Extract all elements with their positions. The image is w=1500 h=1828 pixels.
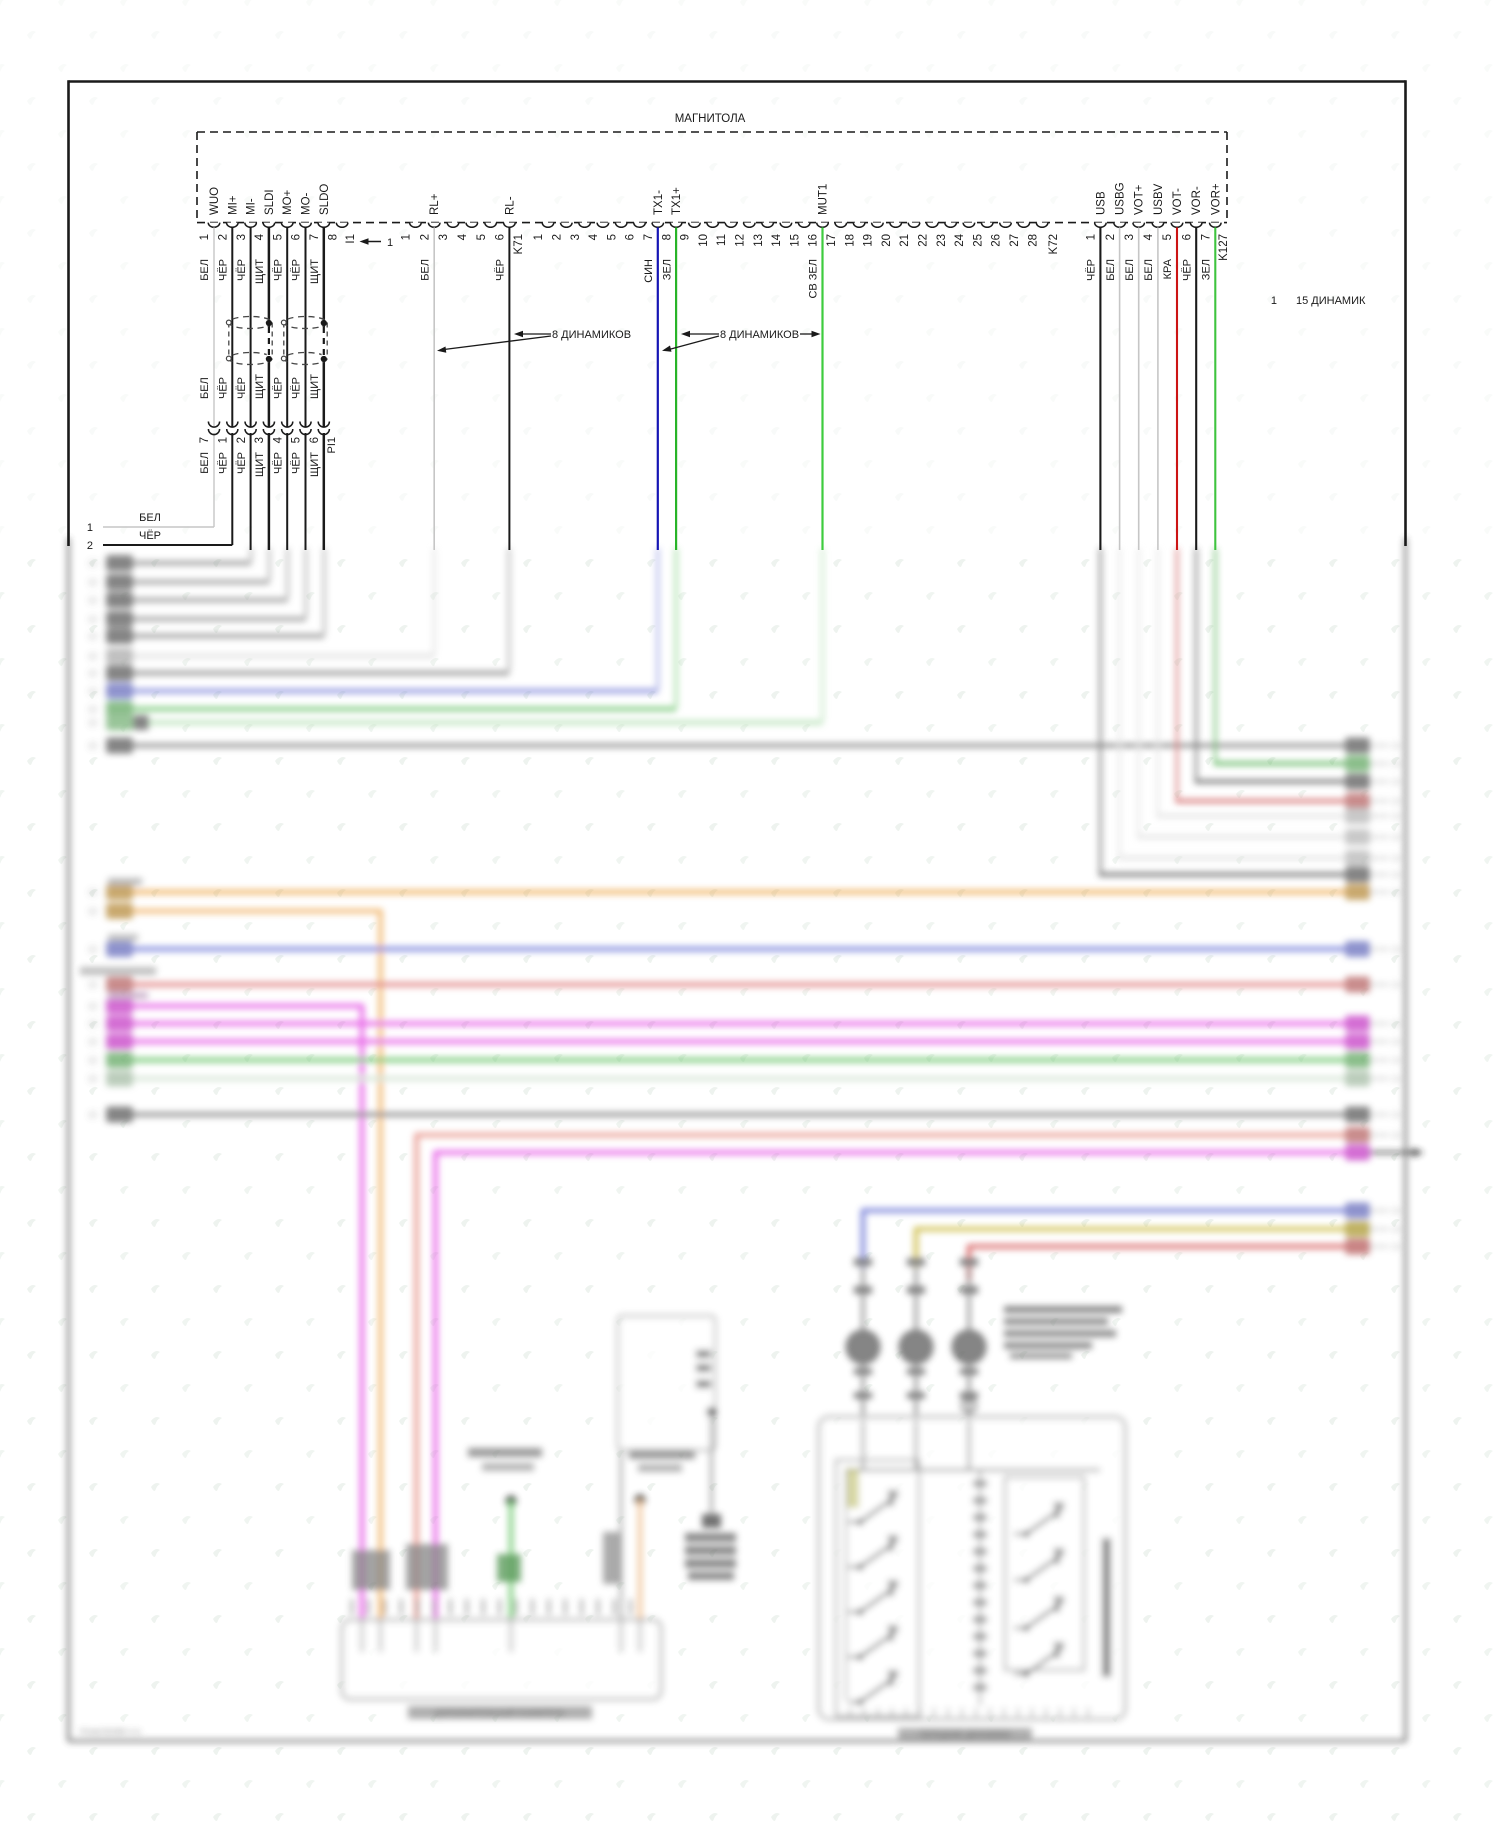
svg-text:K71: K71 [513, 234, 525, 254]
svg-text:ЧЁР: ЧЁР [218, 377, 230, 399]
svg-text:12: 12 [88, 669, 97, 678]
svg-text:24: 24 [954, 233, 966, 246]
svg-text:12: 12 [1392, 981, 1401, 990]
svg-text:MI-: MI- [246, 198, 258, 215]
svg-text:БЕЛ: БЕЛ [419, 259, 431, 281]
svg-text:12: 12 [88, 945, 97, 954]
svg-text:ЩИТ: ЩИТ [254, 374, 266, 399]
svg-text:БЕЛ: БЕЛ [1124, 259, 1136, 281]
svg-text:26: 26 [991, 234, 1003, 247]
svg-text:12: 12 [1392, 1243, 1401, 1252]
svg-text:12: 12 [88, 1002, 97, 1011]
svg-text:12: 12 [735, 234, 747, 247]
svg-text:1: 1 [1086, 234, 1098, 240]
svg-text:8: 8 [327, 234, 339, 240]
svg-text:1: 1 [533, 234, 545, 240]
svg-text:5: 5 [606, 234, 618, 240]
svg-text:ЩИТ: ЩИТ [309, 452, 321, 477]
svg-text:I1: I1 [345, 234, 357, 244]
svg-text:12: 12 [88, 1038, 97, 1047]
svg-text:2: 2 [1105, 234, 1117, 240]
svg-text:22: 22 [918, 234, 930, 247]
svg-text:12: 12 [88, 907, 97, 916]
svg-text:МАГНИТОЛА: МАГНИТОЛА [675, 113, 746, 125]
svg-text:12: 12 [1392, 854, 1401, 863]
svg-text:15: 15 [789, 234, 801, 247]
svg-text:12: 12 [88, 615, 97, 624]
svg-text:20: 20 [881, 234, 893, 247]
svg-text:4: 4 [588, 233, 600, 240]
svg-text:ДОПОЛНИТЕЛЬНЫЙ УСИЛИТЕЛЬ: ДОПОЛНИТЕЛЬНЫЙ УСИЛИТЕЛЬ [435, 1709, 565, 1718]
svg-text:USBV: USBV [1153, 183, 1165, 215]
svg-text:3: 3 [254, 437, 266, 443]
svg-text:ЧЁР: ЧЁР [236, 452, 248, 474]
svg-text:12: 12 [1392, 1075, 1401, 1084]
svg-text:ЧЁР: ЧЁР [272, 259, 284, 281]
svg-text:12: 12 [1392, 871, 1401, 880]
svg-text:USBG: USBG [1115, 182, 1127, 215]
svg-text:6: 6 [625, 234, 637, 240]
svg-text:1: 1 [401, 234, 413, 240]
svg-text:12: 12 [1392, 1111, 1401, 1120]
svg-text:4: 4 [457, 233, 469, 240]
svg-text:4: 4 [254, 233, 266, 240]
svg-text:25: 25 [972, 234, 984, 247]
svg-text:ЗЕЛ: ЗЕЛ [1201, 259, 1213, 280]
svg-text:K72: K72 [1048, 234, 1060, 254]
svg-text:12: 12 [1392, 778, 1401, 787]
svg-text:SLDI: SLDI [264, 189, 276, 215]
svg-text:18: 18 [844, 234, 856, 247]
svg-text:27: 27 [1009, 234, 1021, 247]
svg-text:RL+: RL+ [429, 193, 441, 215]
svg-text:БЕЛ: БЕЛ [1105, 259, 1117, 281]
svg-text:VOR+: VOR+ [1210, 183, 1222, 215]
svg-text:СИН: СИН [643, 259, 655, 283]
svg-text:ЧЁР: ЧЁР [236, 259, 248, 281]
svg-text:6: 6 [309, 437, 321, 443]
svg-text:12: 12 [1392, 1225, 1401, 1234]
svg-text:12: 12 [1392, 1038, 1401, 1047]
svg-text:1: 1 [387, 237, 393, 249]
svg-text:БЕЛ: БЕЛ [139, 512, 161, 524]
svg-text:ЧЁР: ЧЁР [139, 530, 161, 542]
svg-text:VOT-: VOT- [1172, 188, 1184, 215]
svg-text:7: 7 [199, 437, 211, 443]
svg-text:12: 12 [1392, 833, 1401, 842]
svg-text:TX1+: TX1+ [671, 187, 683, 215]
svg-text:12: 12 [88, 596, 97, 605]
svg-text:ЧЁР: ЧЁР [272, 452, 284, 474]
svg-text:2: 2 [552, 234, 564, 240]
svg-text:K127: K127 [1218, 234, 1230, 261]
svg-text:USB: USB [1095, 191, 1107, 215]
svg-text:12: 12 [88, 578, 97, 587]
svg-text:12: 12 [1392, 1056, 1401, 1065]
svg-text:8: 8 [661, 234, 673, 240]
svg-text:ЧЁР: ЧЁР [291, 452, 303, 474]
svg-text:1: 1 [218, 437, 230, 443]
svg-text:16: 16 [808, 234, 820, 247]
svg-text:9: 9 [680, 234, 692, 240]
svg-text:8 ДИНАМИКОВ: 8 ДИНАМИКОВ [552, 329, 631, 341]
svg-text:RL-: RL- [504, 196, 516, 215]
svg-text:12: 12 [1392, 945, 1401, 954]
svg-text:ЧЁР: ЧЁР [1181, 259, 1193, 281]
svg-text:17: 17 [826, 234, 838, 247]
svg-text:12: 12 [88, 705, 97, 714]
svg-text:БЕЛ: БЕЛ [199, 259, 211, 281]
svg-text:28: 28 [1027, 234, 1039, 247]
svg-text:11: 11 [716, 234, 728, 246]
svg-text:WUO: WUO [209, 187, 221, 215]
svg-text:12: 12 [1392, 812, 1401, 821]
svg-text:12: 12 [1392, 760, 1401, 769]
svg-text:TX1-: TX1- [653, 190, 665, 215]
svg-text:12: 12 [88, 687, 97, 696]
svg-text:VOR-: VOR- [1191, 186, 1203, 215]
svg-text:1: 1 [199, 234, 211, 240]
svg-text:ЩИТ: ЩИТ [254, 452, 266, 477]
svg-text:5: 5 [291, 437, 303, 443]
svg-text:ЩИТ: ЩИТ [254, 259, 266, 284]
svg-text:СВ ЗЕЛ: СВ ЗЕЛ [808, 259, 820, 299]
svg-text:2: 2 [419, 234, 431, 240]
svg-text:ЧЁР: ЧЁР [236, 377, 248, 399]
svg-text:12: 12 [88, 1020, 97, 1029]
svg-text:10: 10 [698, 234, 710, 247]
svg-text:MI+: MI+ [227, 195, 239, 215]
svg-text:12: 12 [1392, 1020, 1401, 1029]
svg-text:БЕЛ: БЕЛ [199, 452, 211, 474]
svg-text:14: 14 [771, 233, 783, 246]
svg-text:5: 5 [476, 234, 488, 240]
svg-text:3: 3 [438, 234, 450, 240]
svg-text:3: 3 [1124, 234, 1136, 240]
svg-text:5: 5 [272, 234, 284, 240]
svg-text:12: 12 [88, 1111, 97, 1120]
svg-text:23: 23 [936, 234, 948, 247]
svg-text:12: 12 [88, 981, 97, 990]
svg-text:7: 7 [309, 234, 321, 240]
svg-text:21: 21 [899, 234, 911, 247]
svg-text:12: 12 [88, 1056, 97, 1065]
svg-text:5: 5 [1162, 234, 1174, 240]
svg-text:12: 12 [88, 632, 97, 641]
svg-text:8 ДИНАМИКОВ: 8 ДИНАМИКОВ [720, 329, 799, 341]
svg-text:MO+: MO+ [282, 189, 294, 215]
svg-text:Printed BXWB ru tu: Printed BXWB ru tu [80, 1729, 141, 1736]
svg-text:7: 7 [643, 234, 655, 240]
svg-text:PI1: PI1 [326, 437, 338, 454]
svg-text:12: 12 [1392, 742, 1401, 751]
svg-text:ЧЁР: ЧЁР [218, 452, 230, 474]
svg-text:ЩИТ: ЩИТ [309, 259, 321, 284]
svg-text:ЧЁР: ЧЁР [272, 377, 284, 399]
svg-text:12: 12 [1392, 797, 1401, 806]
svg-text:12: 12 [88, 888, 97, 897]
svg-text:12: 12 [88, 559, 97, 568]
svg-text:13: 13 [753, 234, 765, 247]
svg-text:6: 6 [291, 234, 303, 240]
svg-text:3: 3 [570, 234, 582, 240]
svg-text:2: 2 [236, 437, 248, 443]
svg-text:7: 7 [1201, 234, 1213, 240]
svg-text:15 ДИНАМИК: 15 ДИНАМИК [1296, 295, 1366, 307]
svg-text:12: 12 [88, 652, 97, 661]
svg-text:БЕЛ: БЕЛ [1143, 259, 1155, 281]
svg-text:ЗЕЛ: ЗЕЛ [661, 259, 673, 280]
svg-text:ЧЁР: ЧЁР [1086, 259, 1098, 281]
svg-text:19: 19 [863, 234, 875, 247]
svg-text:12: 12 [88, 742, 97, 751]
svg-text:MUT1: MUT1 [818, 184, 830, 215]
svg-text:4: 4 [272, 436, 284, 443]
svg-text:6: 6 [495, 234, 507, 240]
svg-text:ЧЁР: ЧЁР [218, 259, 230, 281]
svg-text:1: 1 [87, 522, 93, 534]
svg-text:ЧЁР: ЧЁР [291, 259, 303, 281]
svg-text:12: 12 [1392, 1207, 1401, 1216]
svg-text:SLDO: SLDO [319, 184, 331, 215]
svg-text:VOT+: VOT+ [1134, 184, 1146, 215]
svg-text:12: 12 [1392, 1131, 1401, 1140]
svg-text:1: 1 [1271, 295, 1277, 307]
svg-text:4: 4 [1143, 233, 1155, 240]
svg-text:2: 2 [218, 234, 230, 240]
svg-text:ЧЁР: ЧЁР [291, 377, 303, 399]
svg-text:ПЕРЕДНИЕ ДИНАМИКИ: ПЕРЕДНИЕ ДИНАМИКИ [919, 1730, 1011, 1739]
svg-text:6: 6 [1181, 234, 1193, 240]
svg-text:12: 12 [88, 719, 97, 728]
svg-text:ЧЁР: ЧЁР [495, 259, 507, 281]
svg-text:БЕЛ: БЕЛ [199, 377, 211, 399]
svg-text:12: 12 [88, 1075, 97, 1084]
svg-text:12: 12 [1392, 888, 1401, 897]
svg-text:MO-: MO- [301, 192, 313, 215]
svg-text:3: 3 [236, 234, 248, 240]
svg-text:КРА: КРА [1162, 258, 1174, 279]
svg-text:ЩИТ: ЩИТ [309, 374, 321, 399]
